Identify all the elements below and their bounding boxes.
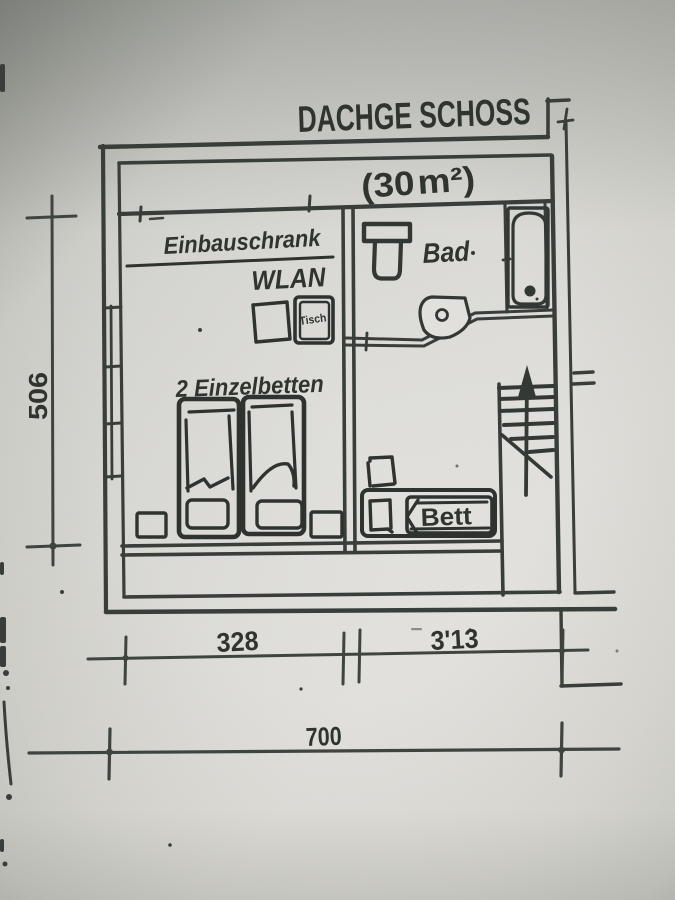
- svg-text:WLAN: WLAN: [251, 262, 327, 296]
- svg-text:328: 328: [216, 626, 260, 658]
- svg-text:Bett: Bett: [420, 502, 473, 532]
- svg-text:506: 506: [23, 372, 53, 420]
- svg-text:(30 m²): (30 m²): [360, 160, 476, 206]
- svg-text:700: 700: [305, 721, 342, 752]
- svg-text:2 Einzelbetten: 2 Einzelbetten: [174, 371, 324, 403]
- svg-text:3ʹ13: 3ʹ13: [430, 624, 480, 656]
- svg-text:Bad: Bad: [422, 236, 471, 269]
- svg-text:DACHGE SCHOSS: DACHGE SCHOSS: [297, 91, 531, 140]
